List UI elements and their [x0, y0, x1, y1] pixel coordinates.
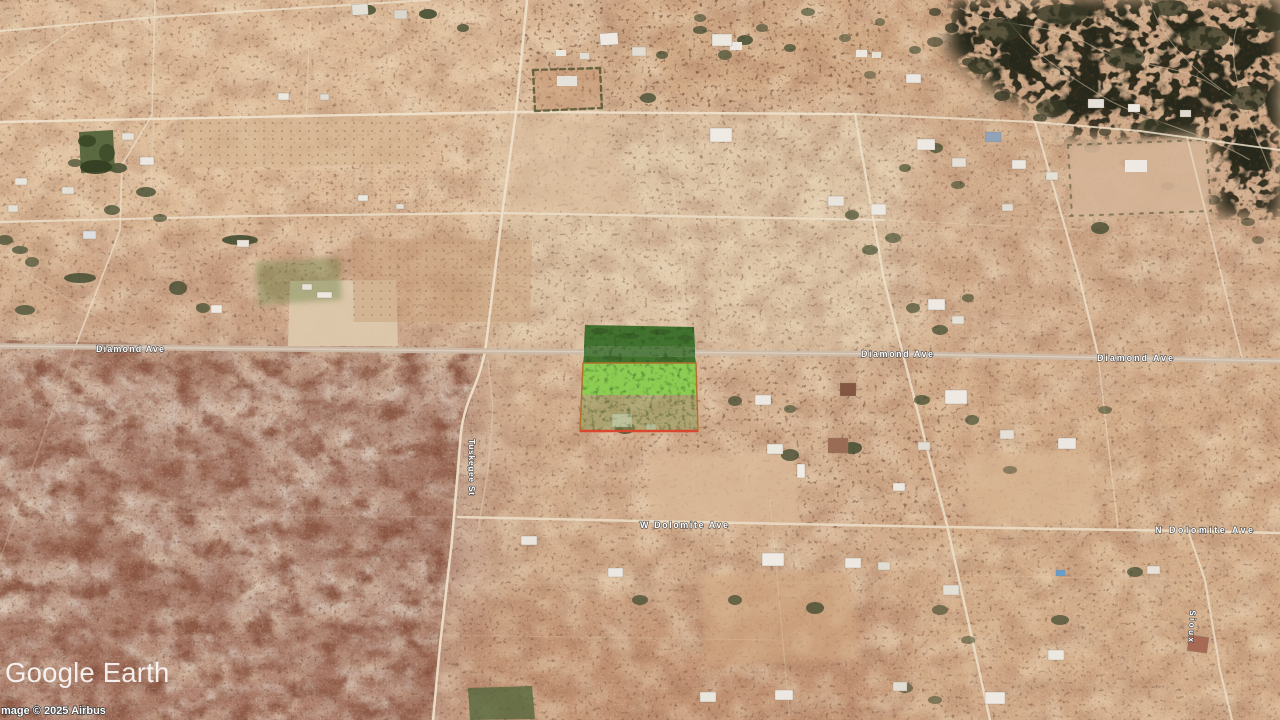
svg-text:W Dolomite Ave: W Dolomite Ave [640, 520, 728, 530]
svg-text:Google Earth: Google Earth [5, 657, 169, 688]
svg-text:Sioux: Sioux [1186, 610, 1198, 643]
svg-text:mage © 2025 Airbus: mage © 2025 Airbus [1, 705, 106, 717]
svg-text:Tuskegee St: Tuskegee St [467, 439, 477, 495]
